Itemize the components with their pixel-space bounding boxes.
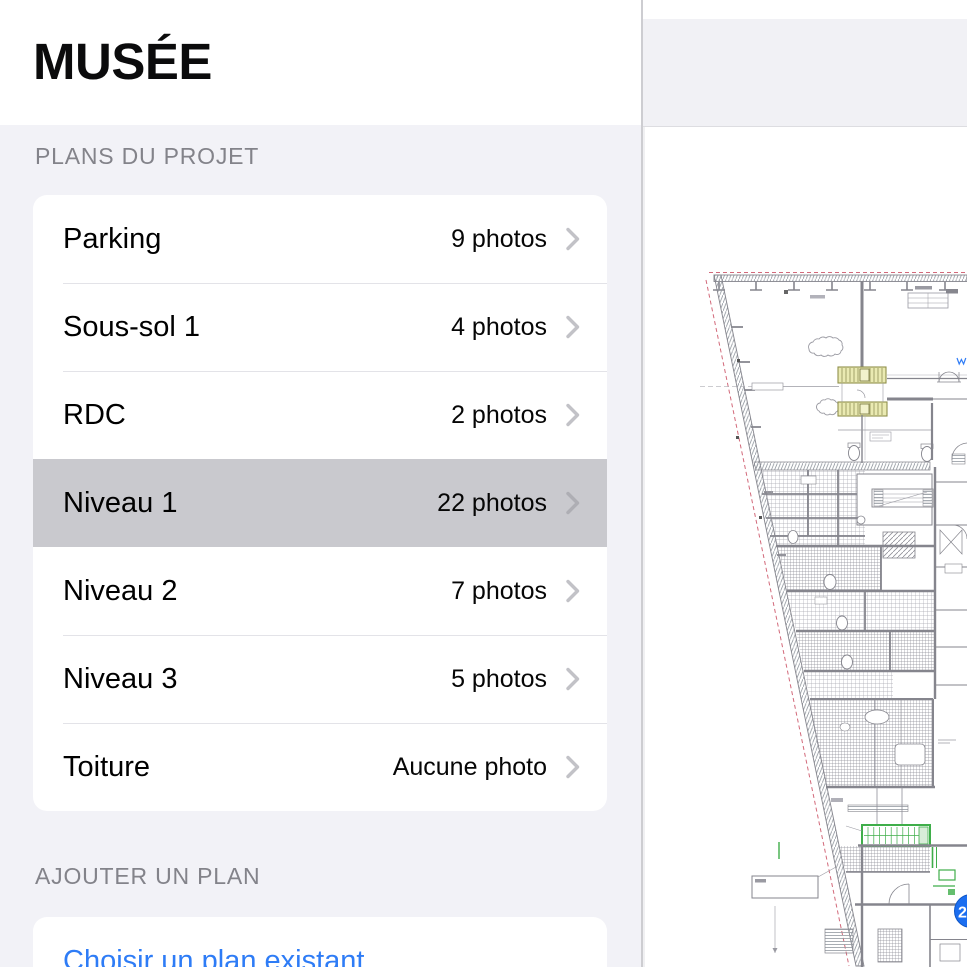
section-header-plans: PLANS DU PROJET — [35, 143, 641, 170]
stair-core-highlight — [838, 367, 887, 416]
photo-marker-badge[interactable]: 2 — [955, 895, 967, 928]
chevron-right-icon — [565, 402, 581, 428]
photo-count: 9 photos — [451, 225, 547, 254]
plan-row-parking[interactable]: Parking 9 photos — [33, 195, 607, 283]
plan-name: Niveau 3 — [63, 663, 451, 696]
double-door — [937, 372, 961, 382]
photo-count: 22 photos — [437, 489, 547, 518]
floor-plan-drawing: 2 — [643, 127, 967, 967]
detail-toolbar — [643, 19, 967, 127]
plan-row-sous-sol-1[interactable]: Sous-sol 1 4 photos — [33, 283, 607, 371]
photo-count: 4 photos — [451, 313, 547, 342]
plan-row-rdc[interactable]: RDC 2 photos — [33, 371, 607, 459]
plan-row-niveau-2[interactable]: Niveau 2 7 photos — [33, 547, 607, 635]
plan-row-niveau-1[interactable]: Niveau 1 22 photos — [33, 459, 607, 547]
green-stair-highlight — [862, 825, 930, 846]
plan-bottom-zone — [752, 699, 967, 967]
photo-marker-count: 2 — [958, 905, 967, 922]
chevron-right-icon — [565, 490, 581, 516]
plan-canvas[interactable]: 2 — [643, 127, 967, 967]
plan-name: RDC — [63, 399, 451, 432]
sidebar: MUSÉE PLANS DU PROJET Parking 9 photos S… — [0, 0, 641, 967]
photo-count: 7 photos — [451, 577, 547, 606]
revision-cloud — [816, 399, 838, 415]
sidebar-header: MUSÉE — [0, 0, 641, 125]
plan-name: Parking — [63, 223, 451, 256]
blue-annotation — [957, 358, 966, 364]
chevron-right-icon — [565, 578, 581, 604]
plan-name: Toiture — [63, 751, 393, 784]
choose-existing-plan-button[interactable]: Choisir un plan existant — [33, 917, 607, 967]
photo-count: 5 photos — [451, 665, 547, 694]
plan-row-niveau-3[interactable]: Niveau 3 5 photos — [33, 635, 607, 723]
chevron-right-icon — [565, 314, 581, 340]
detail-top-strip — [643, 0, 967, 19]
detail-pane: 2 — [643, 0, 967, 967]
chevron-right-icon — [565, 666, 581, 692]
green-annotations — [933, 847, 956, 895]
app-window: MUSÉE PLANS DU PROJET Parking 9 photos S… — [0, 0, 967, 967]
plan-name: Sous-sol 1 — [63, 311, 451, 344]
chevron-right-icon — [565, 226, 581, 252]
section-header-add-plan: AJOUTER UN PLAN — [35, 863, 641, 890]
photo-count: Aucune photo — [393, 753, 547, 782]
photo-count: 2 photos — [451, 401, 547, 430]
add-plan-card: Choisir un plan existant — [33, 917, 607, 967]
choose-existing-plan-label: Choisir un plan existant — [63, 945, 364, 967]
chevron-right-icon — [565, 754, 581, 780]
plan-name: Niveau 2 — [63, 575, 451, 608]
plans-list: Parking 9 photos Sous-sol 1 4 photos RDC… — [33, 195, 607, 811]
plan-name: Niveau 1 — [63, 487, 437, 520]
toilet-fixture — [848, 443, 860, 461]
plan-label-box — [752, 867, 836, 898]
project-title: MUSÉE — [0, 0, 641, 90]
plan-row-toiture[interactable]: Toiture Aucune photo — [33, 723, 607, 811]
revision-cloud — [809, 337, 843, 357]
